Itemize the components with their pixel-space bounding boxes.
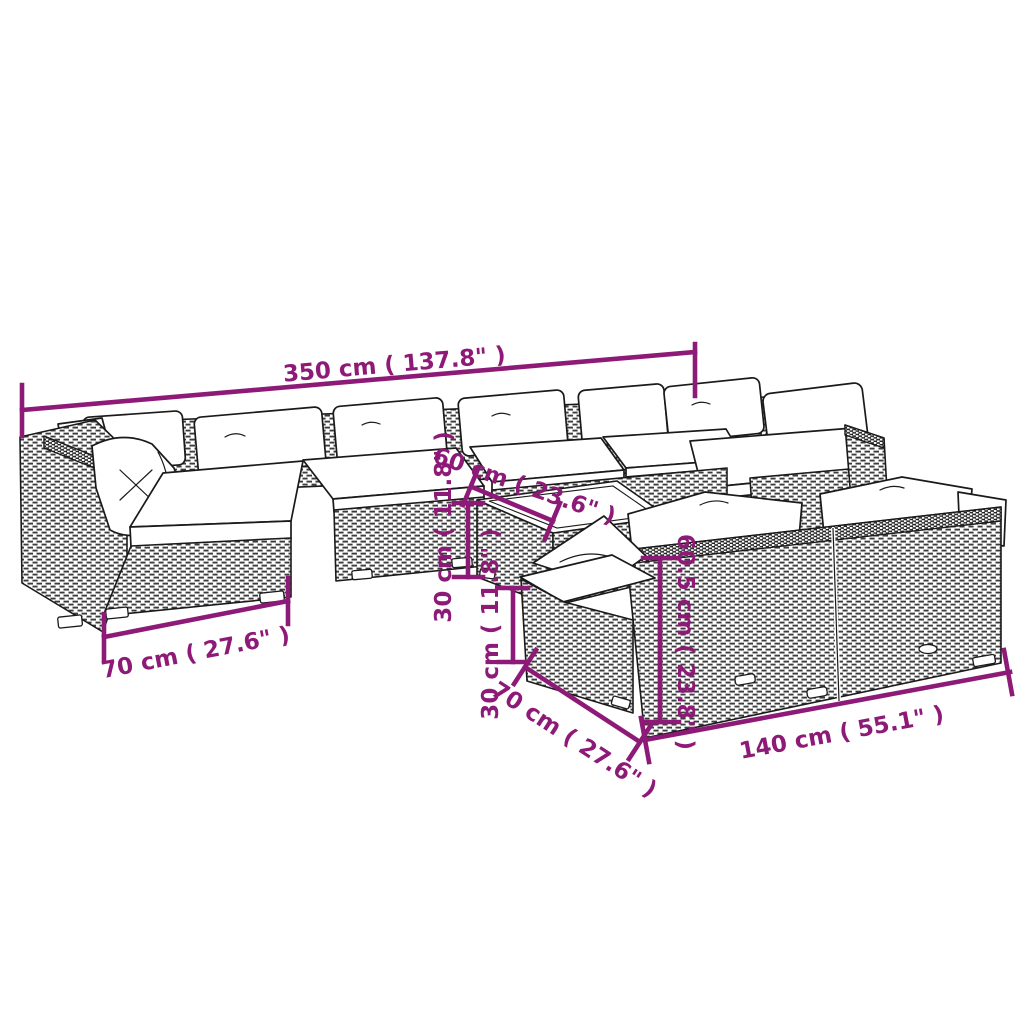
middle-base-panel <box>334 497 484 581</box>
back-panel-hole <box>919 645 937 654</box>
sofa-foot <box>106 607 129 619</box>
dimension-label: 350 cm ( 137.8" ) <box>282 342 507 387</box>
dimension-label: 30 cm ( 11.8" ) <box>431 431 457 622</box>
product-diagram-canvas: 350 cm ( 137.8" ) 60 cm ( 23.6" ) 30 cm … <box>0 0 1024 1024</box>
dimension-label: 60.5 cm ( 23.8" ) <box>672 534 698 750</box>
sofa-foot <box>352 569 373 580</box>
sofa-foot <box>58 615 83 628</box>
lounge-set-diagram: 350 cm ( 137.8" ) 60 cm ( 23.6" ) 30 cm … <box>0 0 1024 1024</box>
